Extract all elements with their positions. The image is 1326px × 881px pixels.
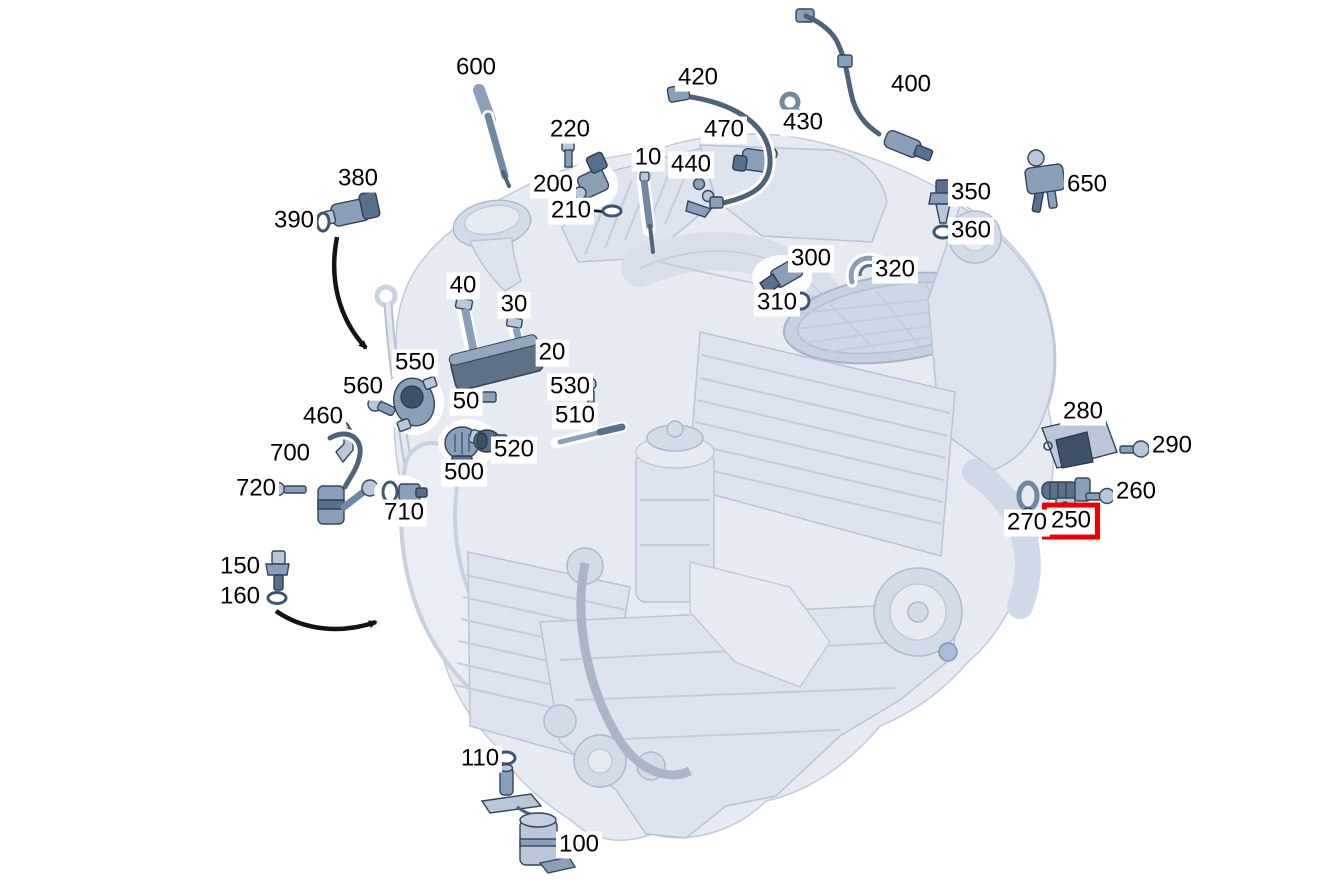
part-callout-30[interactable]: 30 [498,292,531,319]
part-glyph-650 [1024,150,1065,213]
part-glyph-290 [1120,441,1149,457]
part-callout-460[interactable]: 460 [300,404,346,431]
part-callout-360[interactable]: 360 [948,218,994,245]
engine-illustration [0,0,1326,881]
part-callout-700[interactable]: 700 [267,441,313,468]
part-callout-100[interactable]: 100 [556,832,602,859]
part-callout-150[interactable]: 150 [217,554,263,581]
part-callout-390[interactable]: 390 [271,208,317,235]
part-callout-10[interactable]: 10 [632,145,665,172]
part-callout-50[interactable]: 50 [450,389,483,416]
part-callout-440[interactable]: 440 [668,152,714,179]
part-callout-220[interactable]: 220 [547,117,593,144]
part-callout-320[interactable]: 320 [872,257,918,284]
part-callout-250[interactable]: 250 [1042,503,1100,540]
part-callout-310[interactable]: 310 [754,290,800,317]
part-glyph-150 [266,551,289,590]
part-callout-110[interactable]: 110 [458,746,502,773]
part-callout-510[interactable]: 510 [552,403,598,430]
part-callout-400[interactable]: 400 [888,72,934,99]
part-callout-160[interactable]: 160 [217,584,263,611]
arrow-160-to-engine [276,611,376,629]
part-callout-350[interactable]: 350 [948,180,994,207]
part-callout-520[interactable]: 520 [491,437,537,464]
part-callout-500[interactable]: 500 [441,460,487,487]
part-callout-380[interactable]: 380 [335,166,381,193]
part-callout-420[interactable]: 420 [675,65,721,92]
part-glyph-50 [482,392,496,402]
part-callout-210[interactable]: 210 [548,198,594,225]
part-glyph-210-oring [603,206,621,216]
part-callout-20[interactable]: 20 [536,340,569,367]
arrow-380-to-engine [334,237,366,348]
parts-diagram: 6004204004302204701044038065020035021039… [0,0,1326,881]
part-glyph-220 [562,142,574,167]
part-glyph-550 [384,369,444,435]
part-callout-290[interactable]: 290 [1149,433,1195,460]
part-callout-430[interactable]: 430 [780,110,826,137]
part-glyph-160-oring [268,593,286,604]
part-callout-200[interactable]: 200 [530,172,576,199]
part-glyph-600 [479,90,509,186]
part-callout-530[interactable]: 530 [547,374,593,401]
part-callout-270[interactable]: 270 [1004,510,1050,537]
part-callout-280[interactable]: 280 [1060,399,1106,426]
part-callout-300[interactable]: 300 [788,246,834,273]
part-callout-720[interactable]: 720 [233,476,279,503]
part-glyph-390-oring [317,213,329,231]
part-callout-650[interactable]: 650 [1064,172,1110,199]
part-callout-260[interactable]: 260 [1113,479,1159,506]
part-callout-470[interactable]: 470 [701,117,747,144]
part-callout-600[interactable]: 600 [453,55,499,82]
part-callout-40[interactable]: 40 [447,273,480,300]
part-callout-560[interactable]: 560 [340,374,386,401]
part-callout-550[interactable]: 550 [392,350,438,377]
part-callout-710[interactable]: 710 [381,500,427,527]
